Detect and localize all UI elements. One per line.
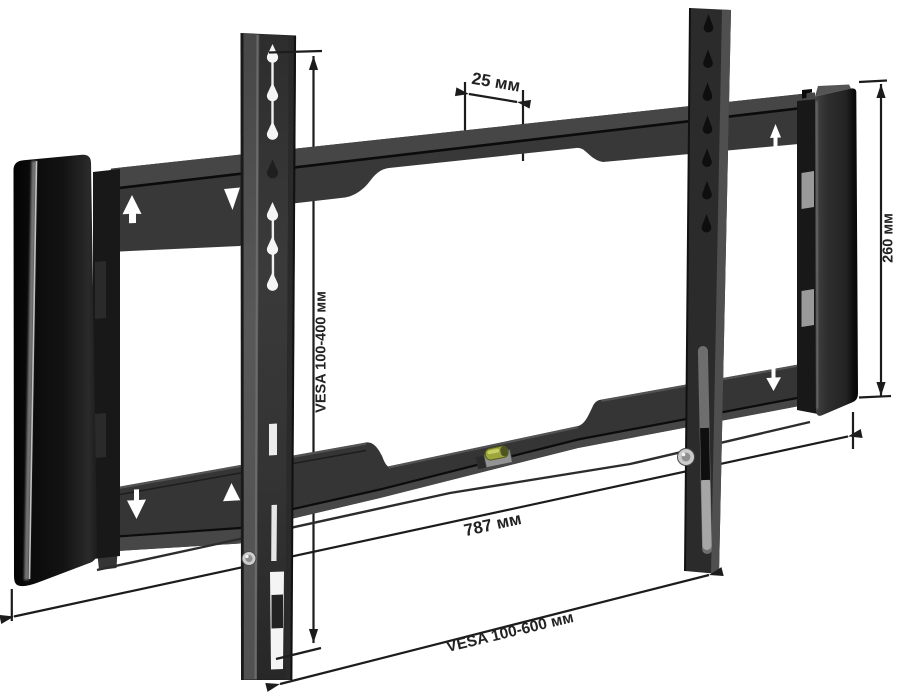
svg-text:VESA 100-400 мм: VESA 100-400 мм [314, 291, 330, 413]
svg-text:260 мм: 260 мм [881, 213, 897, 263]
